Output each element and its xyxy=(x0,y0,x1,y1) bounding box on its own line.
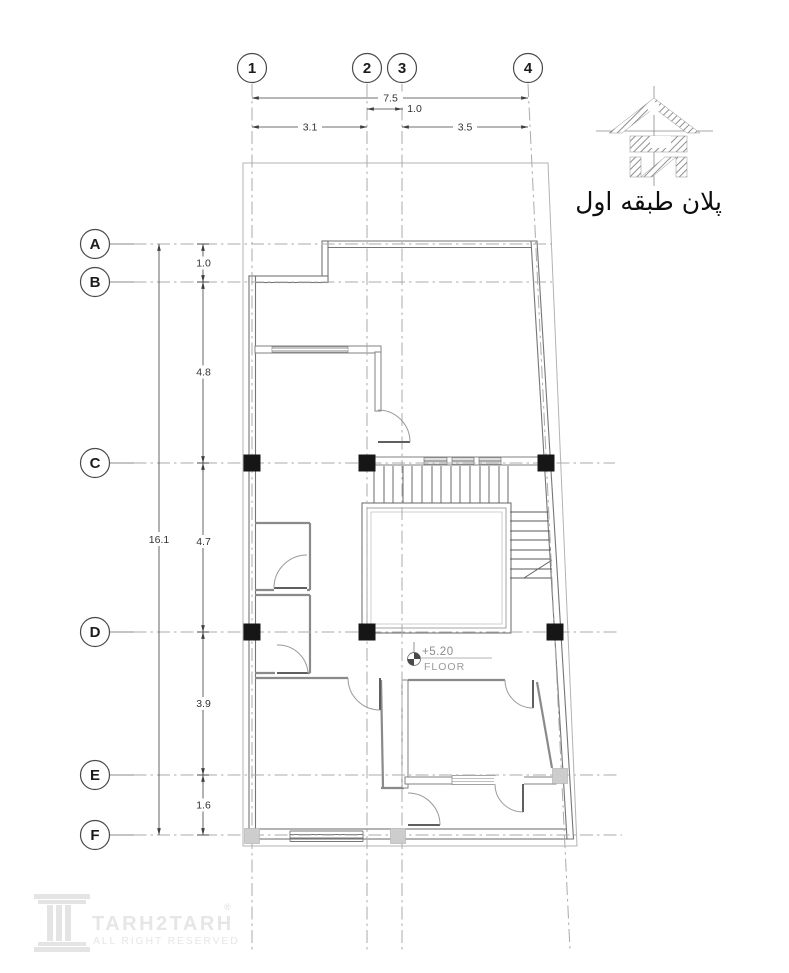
dim-label-left-de: 3.9 xyxy=(196,698,211,710)
level-marker: +5.20 FLOOR xyxy=(408,642,493,673)
dim-label-top-c3-c4: 3.5 xyxy=(458,122,473,134)
grid-line-col-4 xyxy=(528,84,570,950)
level-label: FLOOR xyxy=(424,661,465,673)
door-balcony-center xyxy=(408,793,440,825)
grid-bubble-3: 3 xyxy=(388,54,417,83)
house-logo-icon xyxy=(596,86,713,186)
svg-text:F: F xyxy=(90,827,99,844)
door-bedroom-west xyxy=(348,678,380,710)
column-c4 xyxy=(538,455,555,472)
grid-bubble-b: B xyxy=(81,268,110,297)
stair-void-walls xyxy=(362,503,511,633)
dim-label-left-bc: 4.8 xyxy=(196,367,211,379)
grid-bubbles-columns: 1 2 3 4 xyxy=(238,54,543,83)
top-dimensions: 7.5 1.0 3.1 3.5 xyxy=(252,92,528,134)
door-wc-1 xyxy=(274,555,307,588)
dim-label-left-ab: 1.0 xyxy=(196,258,211,270)
staircase-side-flight xyxy=(510,512,552,578)
column-e4 xyxy=(553,769,568,784)
grid-bubbles-rows: A B C D E F xyxy=(81,230,135,850)
window-bedroom-east xyxy=(452,776,495,785)
grid-bubble-e: E xyxy=(81,761,110,790)
column-d2 xyxy=(359,624,376,641)
svg-text:D: D xyxy=(90,624,101,641)
grid-bubble-c: C xyxy=(81,449,110,478)
dim-label-left-ef: 1.6 xyxy=(196,800,211,812)
plan-title: پلان طبقه اول xyxy=(575,187,722,217)
svg-text:2: 2 xyxy=(363,60,371,77)
grid-bubble-f: F xyxy=(81,821,110,850)
column-f1 xyxy=(245,829,260,844)
svg-text:3: 3 xyxy=(398,60,406,77)
door-hall xyxy=(378,410,410,442)
svg-text:1: 1 xyxy=(248,60,256,77)
dim-label-top-c2-c3: 1.0 xyxy=(407,103,422,115)
door-opening-blank xyxy=(494,776,524,785)
floor-plan-sheet: +5.20 FLOOR 7.5 1.0 3.1 3.5 16.1 xyxy=(0,0,789,973)
level-value: +5.20 xyxy=(422,646,454,658)
door-bedroom-east xyxy=(505,680,533,708)
svg-text:E: E xyxy=(90,767,100,784)
dim-label-left-cd: 4.7 xyxy=(196,536,211,548)
dim-label-top-total: 7.5 xyxy=(383,93,398,105)
dim-label-left-total: 16.1 xyxy=(149,534,170,546)
svg-text:C: C xyxy=(90,455,101,472)
door-wc-2 xyxy=(277,645,308,673)
staircase-upper-flight xyxy=(374,466,508,503)
svg-text:A: A xyxy=(90,236,101,253)
floor-plan-drawing: +5.20 FLOOR 7.5 1.0 3.1 3.5 16.1 xyxy=(0,0,789,973)
column-c1 xyxy=(244,455,261,472)
grid-bubble-2: 2 xyxy=(353,54,382,83)
dim-label-top-c1-c2: 3.1 xyxy=(303,122,318,134)
watermark-pillar-icon xyxy=(34,894,90,952)
window-north-room xyxy=(272,347,348,353)
column-c2 xyxy=(359,455,376,472)
interior-walls xyxy=(255,346,556,788)
watermark: TARH2TARH ® ALL RIGHT RESERVED xyxy=(34,894,240,952)
watermark-subtitle: ALL RIGHT RESERVED xyxy=(93,935,240,947)
watermark-registered: ® xyxy=(224,902,231,912)
grid-bubble-4: 4 xyxy=(514,54,543,83)
left-dimensions: 16.1 1.0 4.8 4.7 3.9 1.6 xyxy=(145,244,215,835)
grid-bubble-a: A xyxy=(81,230,110,259)
watermark-name: TARH2TARH xyxy=(92,913,234,935)
column-d4 xyxy=(547,624,564,641)
column-f2 xyxy=(391,829,406,844)
grid-bubble-d: D xyxy=(81,618,110,647)
column-d1 xyxy=(244,624,261,641)
grid-bubble-1: 1 xyxy=(238,54,267,83)
svg-text:B: B xyxy=(90,274,101,291)
svg-text:4: 4 xyxy=(524,60,533,77)
door-balcony-east xyxy=(495,784,523,812)
